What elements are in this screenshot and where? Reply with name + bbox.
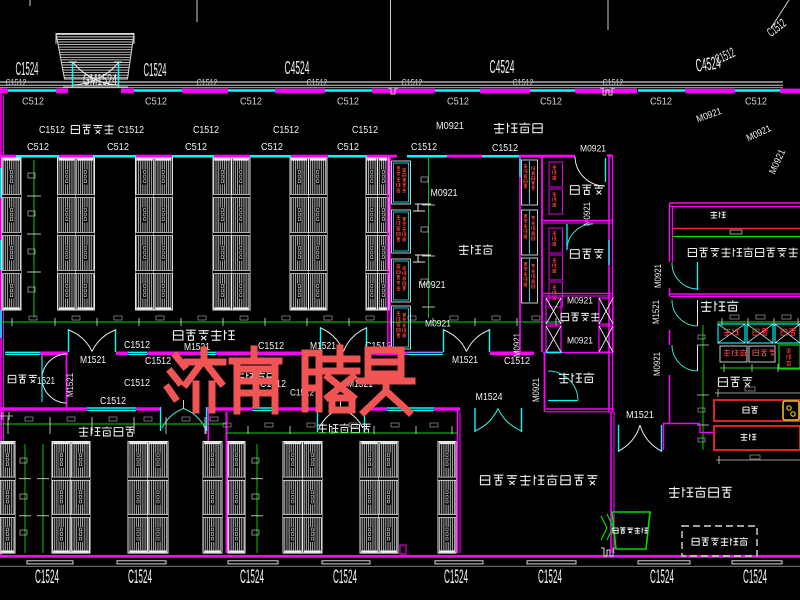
- svg-text:C1512: C1512: [273, 125, 299, 136]
- svg-text:C512: C512: [145, 97, 167, 108]
- svg-text:C4524: C4524: [490, 57, 515, 77]
- svg-text:C1524: C1524: [35, 566, 59, 588]
- svg-text:C1512: C1512: [124, 340, 150, 351]
- svg-text:M0921: M0921: [531, 378, 541, 402]
- svg-text:C1512: C1512: [307, 78, 328, 88]
- svg-text:C1512: C1512: [492, 143, 518, 154]
- svg-text:C1524: C1524: [743, 566, 767, 588]
- svg-text:M1521: M1521: [65, 373, 75, 397]
- svg-text:M0921: M0921: [567, 336, 593, 346]
- svg-text:M0921: M0921: [652, 352, 662, 376]
- svg-text:C1512: C1512: [603, 78, 624, 88]
- svg-text:M0921: M0921: [419, 280, 446, 291]
- svg-text:C1512: C1512: [513, 78, 534, 88]
- svg-text:C512: C512: [22, 97, 44, 108]
- svg-text:C512: C512: [240, 97, 262, 108]
- svg-text:GM1524: GM1524: [83, 72, 117, 89]
- svg-text:C1524: C1524: [128, 566, 152, 588]
- svg-text:C1512: C1512: [118, 125, 144, 136]
- svg-text:C512: C512: [337, 142, 359, 153]
- svg-text:C1524: C1524: [444, 566, 468, 588]
- svg-text:M1521: M1521: [651, 300, 661, 324]
- svg-text:C512: C512: [447, 97, 469, 108]
- svg-text:C1512: C1512: [6, 78, 27, 88]
- svg-text:C1512: C1512: [193, 125, 219, 136]
- svg-text:C512: C512: [540, 97, 562, 108]
- svg-text:C1512: C1512: [197, 78, 218, 88]
- svg-text:C1512: C1512: [402, 78, 423, 88]
- svg-text:M1521: M1521: [452, 355, 478, 366]
- svg-text:M0921: M0921: [653, 264, 663, 288]
- svg-text:C512: C512: [107, 142, 129, 153]
- svg-text:C512: C512: [650, 97, 672, 108]
- svg-text:M0921: M0921: [582, 202, 592, 226]
- svg-text:C1512: C1512: [124, 378, 150, 389]
- svg-text:C1512: C1512: [258, 341, 284, 352]
- svg-text:C512: C512: [337, 97, 359, 108]
- svg-text:C1512: C1512: [39, 125, 65, 136]
- svg-text:M0921: M0921: [580, 144, 606, 154]
- svg-text:M0921: M0921: [436, 121, 464, 132]
- svg-text:C1524: C1524: [650, 566, 674, 588]
- svg-text:C4524: C4524: [285, 58, 310, 78]
- svg-text:C1512: C1512: [352, 125, 378, 136]
- svg-text:M1524: M1524: [476, 392, 504, 403]
- svg-text:C1512: C1512: [100, 396, 126, 407]
- svg-text:C1524: C1524: [240, 566, 264, 588]
- svg-text:C1512: C1512: [145, 356, 171, 367]
- svg-text:M0921: M0921: [425, 319, 451, 329]
- svg-text:M1521: M1521: [626, 410, 654, 421]
- svg-text:C512: C512: [185, 142, 207, 153]
- svg-text:C1512: C1512: [411, 142, 437, 153]
- svg-text:C512: C512: [745, 97, 767, 108]
- svg-text:C1524: C1524: [333, 566, 357, 588]
- svg-text:M0921: M0921: [431, 188, 458, 199]
- svg-text:M0921: M0921: [567, 296, 593, 306]
- svg-text:C512: C512: [27, 142, 49, 153]
- svg-text:C1524: C1524: [144, 60, 167, 80]
- svg-text:C1524: C1524: [16, 59, 39, 79]
- svg-text:C512: C512: [261, 142, 283, 153]
- svg-text:M1521: M1521: [80, 355, 106, 366]
- svg-text:1521: 1521: [37, 376, 55, 387]
- svg-text:C1524: C1524: [538, 566, 562, 588]
